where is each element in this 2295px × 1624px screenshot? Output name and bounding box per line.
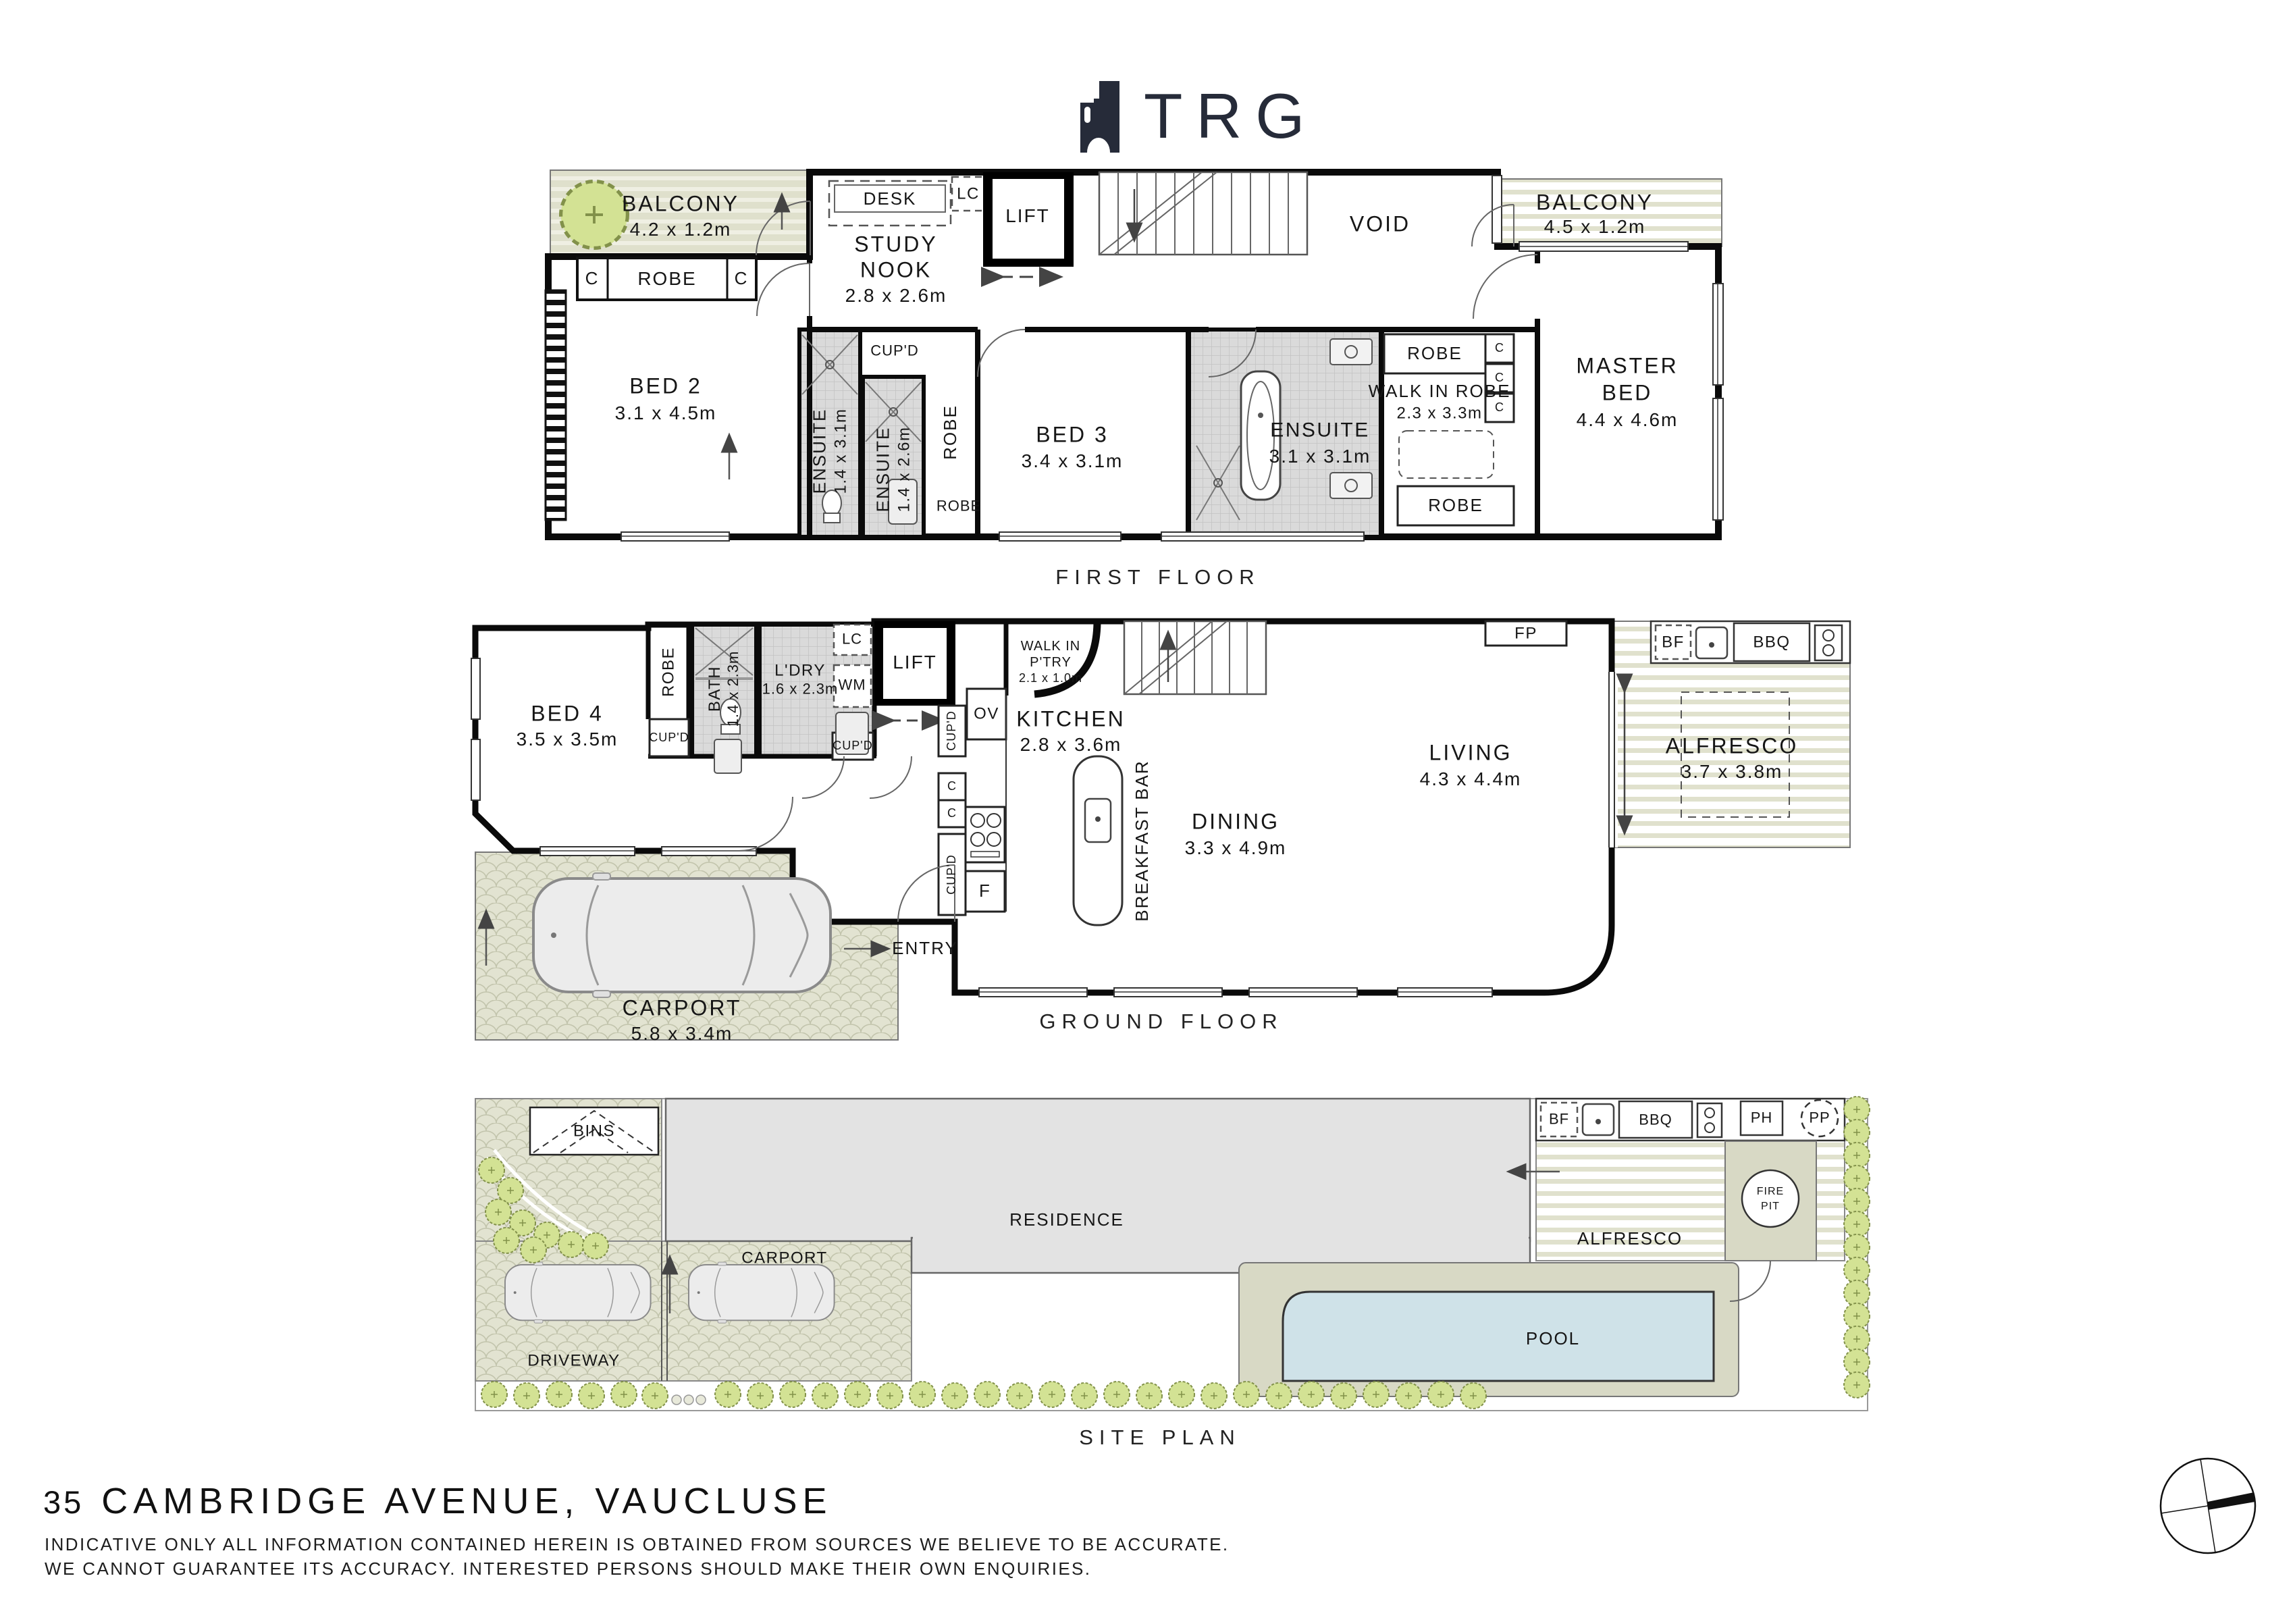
bed2-label: BED 2 — [629, 373, 702, 399]
cupd-b-label: CUP'D — [833, 739, 872, 754]
lc-label: LC — [957, 184, 980, 203]
carport-dims: 5.8 x 3.4m — [631, 1022, 733, 1045]
cupd-c-label: CUP'D — [945, 710, 959, 750]
balcony-right-label: BALCONY — [1536, 189, 1654, 215]
svg-defs — [0, 0, 1, 1]
c5-label: C — [1495, 400, 1504, 415]
walkin-pantry-line1: WALK IN — [1021, 638, 1081, 654]
study-nook-dims: 2.8 x 2.6m — [845, 284, 947, 307]
robe-bottom-label: ROBE — [1428, 495, 1483, 517]
oven-label: OV — [974, 704, 999, 723]
breakfast-bar-label: BREAKFAST BAR — [1132, 760, 1153, 921]
balcony-left-label: BALCONY — [622, 190, 739, 217]
first-floor-plan: BALCONY 4.2 x 1.2m C ROBE C BED 2 3.1 x … — [527, 162, 1769, 608]
site-plan-title: SITE PLAN — [1079, 1425, 1241, 1450]
master-bed-dims: 4.4 x 4.6m — [1577, 409, 1679, 431]
ldry-label: L'DRY — [774, 660, 826, 680]
walkin-pantry-line2: P'TRY — [1030, 654, 1072, 671]
lift-label: LIFT — [893, 651, 937, 674]
freezer-label: F — [979, 881, 991, 902]
pp-label: PP — [1809, 1109, 1830, 1128]
c2-box-label: C — [947, 806, 957, 821]
ground-floor-plan: BED 4 3.5 x 3.5m ROBE CUP'D BATH1.4 x 2.… — [466, 611, 1891, 1060]
site-bf-label: BF — [1549, 1111, 1569, 1129]
entry-label: ENTRY — [892, 938, 958, 960]
study-nook-line2: NOOK — [860, 257, 932, 283]
study-nook-line1: STUDY — [854, 231, 937, 257]
cupboard-c-right: C — [735, 268, 749, 290]
bed2-dims: 3.1 x 4.5m — [615, 402, 717, 425]
fireplace-label: FP — [1514, 623, 1537, 643]
master-bed-line2: BED — [1602, 379, 1653, 406]
ph-label: PH — [1751, 1109, 1773, 1128]
disclaimer-line1: INDICATIVE ONLY ALL INFORMATION CONTAINE… — [45, 1534, 1230, 1555]
lc-box-label: LC — [842, 631, 862, 649]
bed3-label: BED 3 — [1036, 421, 1108, 448]
robe-label: ROBE — [658, 647, 678, 697]
walkin-pantry-dims: 2.1 x 1.0m — [1019, 671, 1082, 686]
carport-label: CARPORT — [623, 995, 742, 1021]
bbq-label: BBQ — [1753, 632, 1790, 652]
robe-vert-label: ROBE — [940, 404, 961, 460]
robe-top-label: ROBE — [1407, 343, 1462, 365]
cupboard-c-left: C — [585, 268, 600, 290]
c1-box-label: C — [947, 779, 957, 794]
residence-label: RESIDENCE — [1009, 1209, 1124, 1231]
floorplan-sheet: { "logo": { "text": "TRG" }, "first": { … — [0, 0, 2295, 1624]
master-bed-line1: MASTER — [1576, 352, 1678, 379]
fire-pit-line1: FIRE — [1757, 1185, 1784, 1199]
ensuite3-dims: 3.1 x 3.1m — [1269, 445, 1371, 468]
void-label: VOID — [1350, 211, 1410, 237]
balcony-right-dims: 4.5 x 1.2m — [1544, 215, 1646, 238]
desk-label: DESK — [864, 188, 917, 210]
ground-floor-title: GROUND FLOOR — [1039, 1009, 1283, 1034]
bed3-dims: 3.4 x 3.1m — [1022, 450, 1124, 473]
site-bbq-label: BBQ — [1639, 1111, 1672, 1130]
first-floor-title: FIRST FLOOR — [1055, 565, 1260, 590]
bed4-label: BED 4 — [531, 700, 603, 727]
pool-label: POOL — [1526, 1328, 1580, 1350]
wm-box-label: WM — [838, 677, 866, 695]
logo-wordmark: TRG — [1144, 80, 1318, 153]
site-plan-drawing — [466, 1091, 1891, 1452]
walk-in-robe-dims: 2.3 x 3.3m — [1396, 403, 1482, 423]
ldry-dims: 1.6 x 2.3m — [762, 681, 839, 699]
dining-label: DINING — [1192, 808, 1280, 835]
living-label: LIVING — [1429, 739, 1512, 766]
c3-label: C — [1495, 341, 1504, 356]
lift-label: LIFT — [1005, 205, 1050, 228]
bf-label: BF — [1662, 632, 1685, 652]
alfresco-label: ALFRESCO — [1666, 733, 1798, 759]
kitchen-dims: 2.8 x 3.6m — [1020, 733, 1122, 756]
address-street: CAMBRIDGE AVENUE, VAUCLUSE — [101, 1480, 832, 1522]
dining-dims: 3.3 x 4.9m — [1185, 837, 1287, 860]
ensuite2-label: ENSUITE1.4 x 2.6m — [846, 426, 940, 512]
trg-castle-icon — [1075, 76, 1129, 154]
site-alfresco-label: ALFRESCO — [1577, 1228, 1683, 1250]
bed4-dims: 3.5 x 3.5m — [517, 728, 618, 751]
compass-icon — [2147, 1445, 2272, 1570]
site-plan: BINS RESIDENCE CARPORT DRIVEWAY POOL ALF… — [466, 1091, 1891, 1452]
bins-label: BINS — [573, 1121, 615, 1141]
bath-label: BATH1.4 x 2.3m — [679, 651, 769, 727]
alfresco-dims: 3.7 x 3.8m — [1681, 760, 1783, 783]
address-number: 35 — [43, 1484, 84, 1521]
ensuite3-label: ENSUITE — [1270, 419, 1370, 444]
disclaimer-line2: WE CANNOT GUARANTEE ITS ACCURACY. INTERE… — [45, 1558, 1091, 1579]
cupd-a-label: CUP'D — [649, 731, 689, 745]
robe-small-label: ROBE — [937, 498, 981, 516]
fire-pit-line2: PIT — [1761, 1200, 1780, 1213]
walk-in-robe-label: WALK IN ROBE — [1369, 381, 1511, 402]
driveway-label: DRIVEWAY — [527, 1351, 620, 1370]
robe-left-label: ROBE — [637, 267, 696, 290]
address-title: 35 CAMBRIDGE AVENUE, VAUCLUSE — [43, 1480, 833, 1522]
living-dims: 4.3 x 4.4m — [1420, 768, 1522, 791]
cupd-d-label: CUP'D — [945, 854, 959, 894]
balcony-left-dims: 4.2 x 1.2m — [630, 218, 732, 241]
cupd-label: CUP'D — [870, 342, 919, 361]
kitchen-label: KITCHEN — [1016, 706, 1125, 732]
site-carport-label: CARPORT — [741, 1248, 827, 1267]
